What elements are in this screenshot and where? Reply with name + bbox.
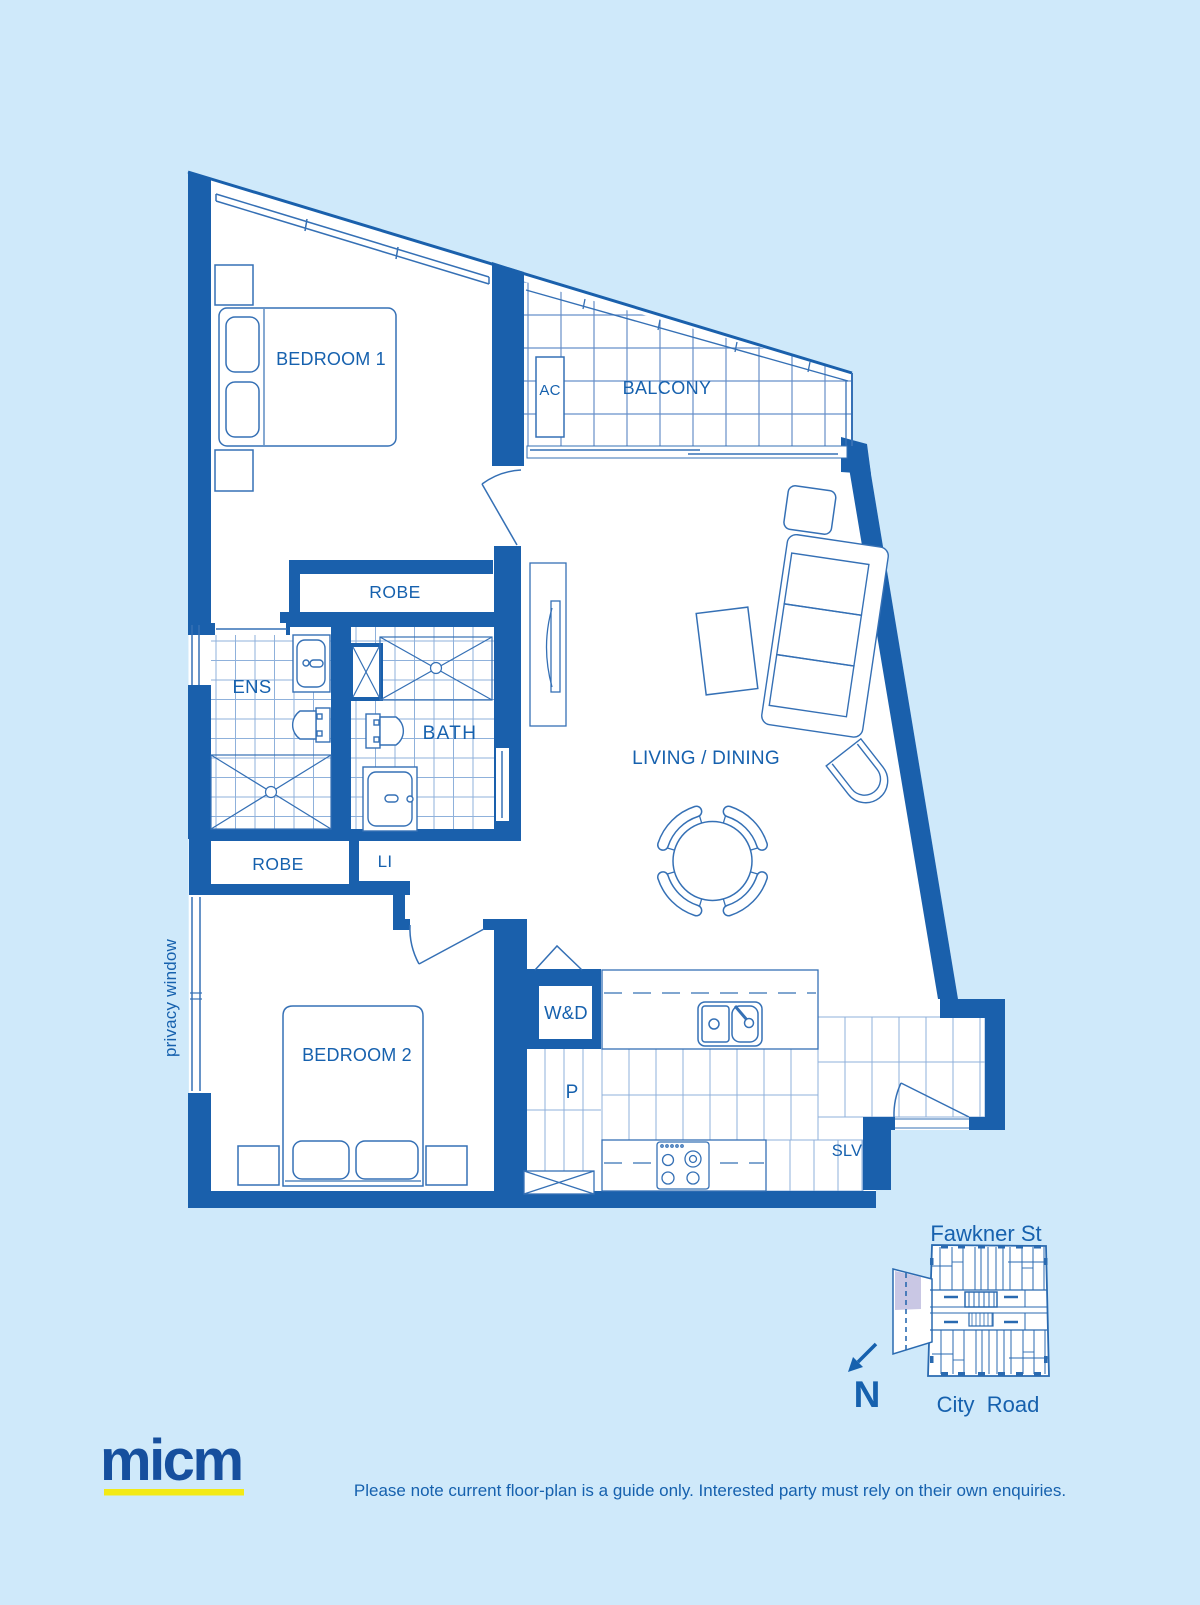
svg-text:ROBE: ROBE: [252, 854, 304, 874]
svg-text:AC: AC: [539, 382, 560, 399]
svg-text:Please note current floor-plan: Please note current floor-plan is a guid…: [354, 1481, 1066, 1500]
svg-text:LI: LI: [378, 852, 393, 871]
svg-text:City Road: City Road: [937, 1392, 1040, 1417]
svg-text:LIVING / DINING: LIVING / DINING: [632, 748, 780, 769]
svg-text:W&D: W&D: [544, 1002, 588, 1023]
svg-text:ROBE: ROBE: [369, 582, 421, 602]
svg-text:N: N: [854, 1374, 881, 1415]
svg-text:BEDROOM 1: BEDROOM 1: [276, 349, 386, 369]
svg-text:BATH: BATH: [423, 723, 478, 744]
svg-text:P: P: [566, 1082, 579, 1103]
svg-text:micm: micm: [100, 1428, 242, 1493]
svg-text:privacy window: privacy window: [161, 938, 180, 1057]
svg-text:BALCONY: BALCONY: [623, 378, 712, 398]
svg-text:SLV: SLV: [832, 1142, 863, 1160]
svg-text:Fawkner St: Fawkner St: [930, 1221, 1041, 1246]
svg-text:BEDROOM 2: BEDROOM 2: [302, 1045, 412, 1065]
svg-text:ENS: ENS: [233, 676, 272, 697]
